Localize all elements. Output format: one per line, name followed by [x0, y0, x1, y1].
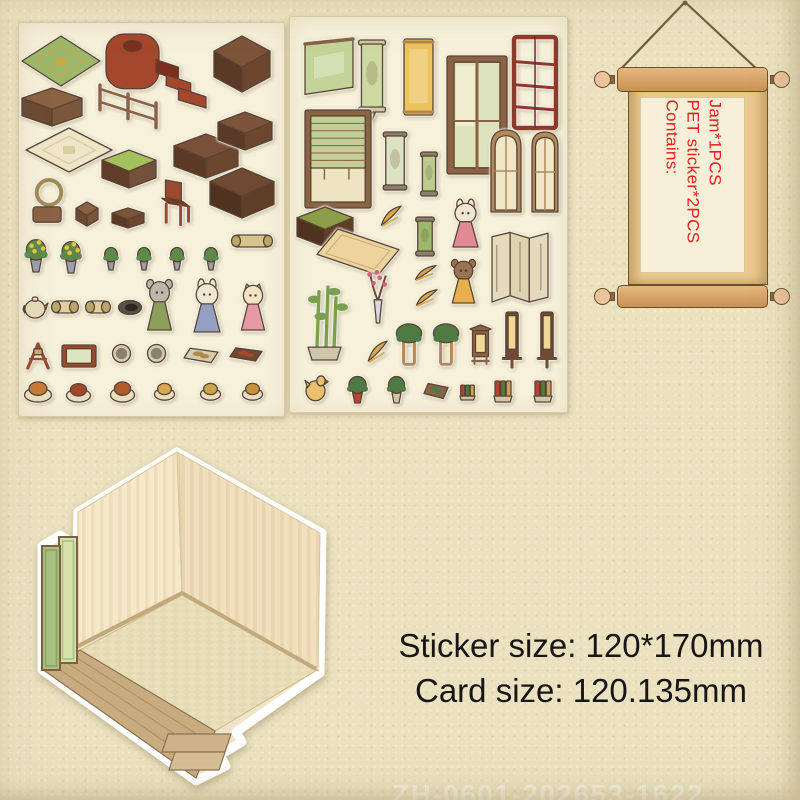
room-step-2	[169, 752, 225, 770]
tea-table-sticker	[217, 111, 273, 151]
dish-4-sticker	[153, 381, 176, 401]
potted-flower-sticker	[384, 376, 409, 404]
scroll-bundle-1-sticker	[51, 297, 79, 317]
planter-box-sticker	[423, 378, 449, 403]
rolled-mat-sticker	[231, 231, 273, 251]
watermark-code: ZH-0601-202653-1622	[392, 779, 704, 800]
basket-chair-sticker	[31, 179, 67, 227]
sticker-sheet-2	[289, 16, 568, 413]
plate-2-sticker	[146, 343, 167, 364]
bamboo-plant-sticker	[304, 284, 354, 361]
wooden-stand-sticker	[23, 341, 53, 371]
framed-art-sticker	[61, 343, 97, 369]
dim-sum-tray-sticker	[183, 343, 219, 367]
plant-stand-2-sticker	[431, 323, 461, 366]
bear-figure-sticker	[448, 259, 479, 304]
flower-arrangement-2-sticker	[57, 241, 85, 274]
mouse-figure-sticker	[143, 279, 176, 331]
armchair-sticker	[159, 179, 195, 227]
stool-sticker	[75, 201, 99, 227]
rug-green-diamond-sticker	[21, 35, 101, 87]
scroll-top-rod	[617, 67, 768, 92]
leaf-spray-4-sticker	[366, 339, 389, 366]
leaf-spray-2-sticker	[413, 264, 438, 283]
fence-railing-sticker	[97, 75, 159, 131]
floor-lamp-2-sticker	[536, 311, 558, 369]
plant-stand-1-sticker	[394, 323, 424, 366]
floor-lamp-1-sticker	[501, 311, 523, 369]
leaf-spray-1-sticker	[379, 204, 403, 230]
wall-shelf-sticker	[21, 87, 83, 127]
room-step-1	[162, 734, 231, 752]
cabinet-sticker	[213, 35, 271, 93]
flower-arrangement-1-sticker	[21, 239, 51, 273]
arched-door-1-sticker	[490, 129, 522, 213]
scroll-bottom-right-knob	[773, 288, 790, 305]
book-stack-2-sticker	[533, 378, 553, 403]
potted-plant-2-sticker	[134, 247, 154, 271]
potted-flower-red-sticker	[344, 376, 371, 404]
scroll-bundle-2-sticker	[85, 297, 111, 317]
window-blinds-sticker	[304, 109, 372, 209]
scroll-text-line-0: Contains:	[661, 98, 683, 274]
bird-figure-sticker	[304, 371, 329, 404]
folding-screen-sticker	[491, 231, 549, 303]
potted-plant-3-sticker	[167, 247, 187, 271]
dish-2-sticker	[65, 381, 92, 403]
snack-tray-sticker	[229, 343, 263, 365]
rabbit-figure-sticker	[189, 281, 225, 333]
dish-1-sticker	[23, 379, 53, 403]
wall-flag-green-sticker	[304, 38, 354, 98]
dish-6-sticker	[241, 381, 264, 401]
leaf-spray-3-sticker	[414, 288, 439, 309]
scroll-contains-text: Contains:PET sticker*2PCSJam*1PCS	[641, 98, 746, 274]
scroll-top-right-knob	[773, 71, 790, 88]
potted-plant-4-sticker	[201, 247, 221, 271]
book-stack-1-sticker	[493, 378, 513, 403]
hanging-scroll-small-sticker	[419, 151, 439, 199]
scroll-top-left-knob	[594, 71, 611, 88]
dish-3-sticker	[109, 379, 136, 403]
dish-5-sticker	[199, 381, 222, 401]
sticker-size-text: Sticker size: 120*170mm	[363, 623, 799, 668]
cat-figure-sticker	[237, 283, 269, 331]
scroll-text-line-1: PET sticker*2PCS	[682, 98, 704, 274]
card-size-text: Card size: 120.135mm	[363, 668, 799, 713]
scroll-bamboo-sticker	[414, 216, 436, 259]
wooden-lantern-sticker	[468, 324, 493, 366]
ink-dish-sticker	[117, 299, 143, 316]
hanging-scroll-art-sticker	[381, 131, 409, 193]
bench-green-cushion-sticker	[101, 149, 157, 189]
book-stack-small-sticker	[459, 383, 476, 401]
room-side-screen	[42, 537, 77, 670]
scroll-text-line-2: Jam*1PCS	[704, 98, 726, 274]
plum-blossom-vase-sticker	[364, 269, 392, 324]
rabbit-girl-figure-sticker	[448, 201, 483, 248]
foot-stool-sticker	[111, 207, 145, 229]
scroll-bottom-rod	[617, 285, 768, 308]
sticker-sheet-1	[18, 22, 285, 417]
rug-cream-diamond-sticker	[25, 127, 113, 173]
wall-banner-yellow-sticker	[403, 36, 434, 118]
product-image: Contains:PET sticker*2PCSJam*1PCS	[0, 0, 800, 800]
display-shelf-red-sticker	[513, 33, 557, 129]
size-text: Sticker size: 120*170mm Card size: 120.1…	[363, 623, 799, 713]
censer-sticker	[21, 291, 49, 321]
plate-1-sticker	[111, 343, 132, 364]
room-display-card	[28, 440, 328, 790]
potted-plant-1-sticker	[101, 247, 121, 271]
scroll-bottom-left-knob	[594, 288, 611, 305]
arched-door-2-sticker	[531, 131, 559, 213]
daybed-bench-sticker	[209, 167, 275, 219]
